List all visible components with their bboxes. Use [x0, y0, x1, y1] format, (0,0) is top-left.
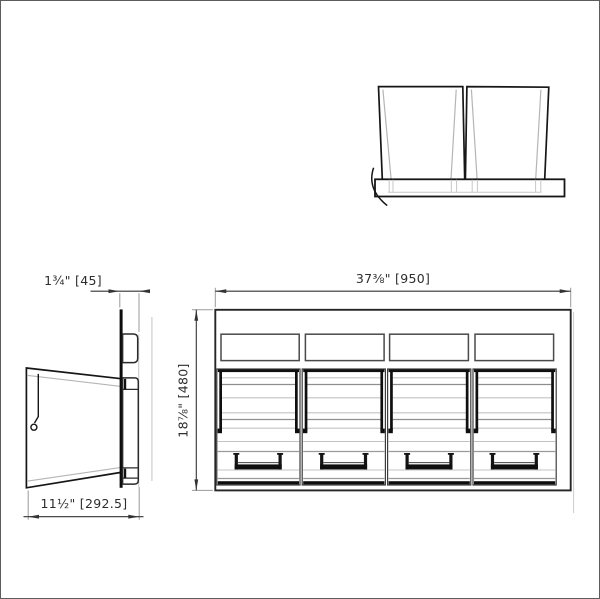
top-view: [372, 87, 565, 206]
front-view: [192, 288, 574, 513]
arrowhead: [109, 289, 120, 293]
front-view-width-dim-label: 37⅜" [950]: [342, 272, 444, 286]
arrowhead: [194, 479, 198, 490]
side-view-top-bracket: [123, 334, 138, 363]
top-flap: [390, 334, 469, 360]
arrowhead: [28, 515, 39, 519]
side-view: [24, 289, 152, 520]
drawing-canvas: 1¾" [45] 11½" [292.5] 37⅜" [950] 18⅞" [4…: [0, 0, 600, 599]
side-view-depth-dim-label: 11½" [292.5]: [38, 497, 130, 511]
side-view-clip-top: [124, 379, 126, 390]
top-flap: [305, 334, 384, 360]
top-flap: [475, 334, 554, 360]
side-view-pivot: [31, 424, 37, 430]
arrowhead: [560, 289, 571, 293]
top-flap: [221, 334, 299, 360]
front-view-height-dim-label: 18⅞" [480]: [176, 350, 191, 452]
side-view-hidden-lines: [139, 317, 152, 487]
arrowhead: [215, 289, 226, 293]
front-view-height-dimension: [192, 310, 213, 491]
arrowhead: [128, 515, 139, 519]
side-view-thickness-dim-label: 1¾" [45]: [37, 274, 109, 288]
arrowhead: [194, 310, 198, 321]
front-view-width-dimension: [215, 288, 570, 308]
arrowhead: [139, 289, 150, 293]
side-view-clip-bottom: [124, 469, 126, 478]
